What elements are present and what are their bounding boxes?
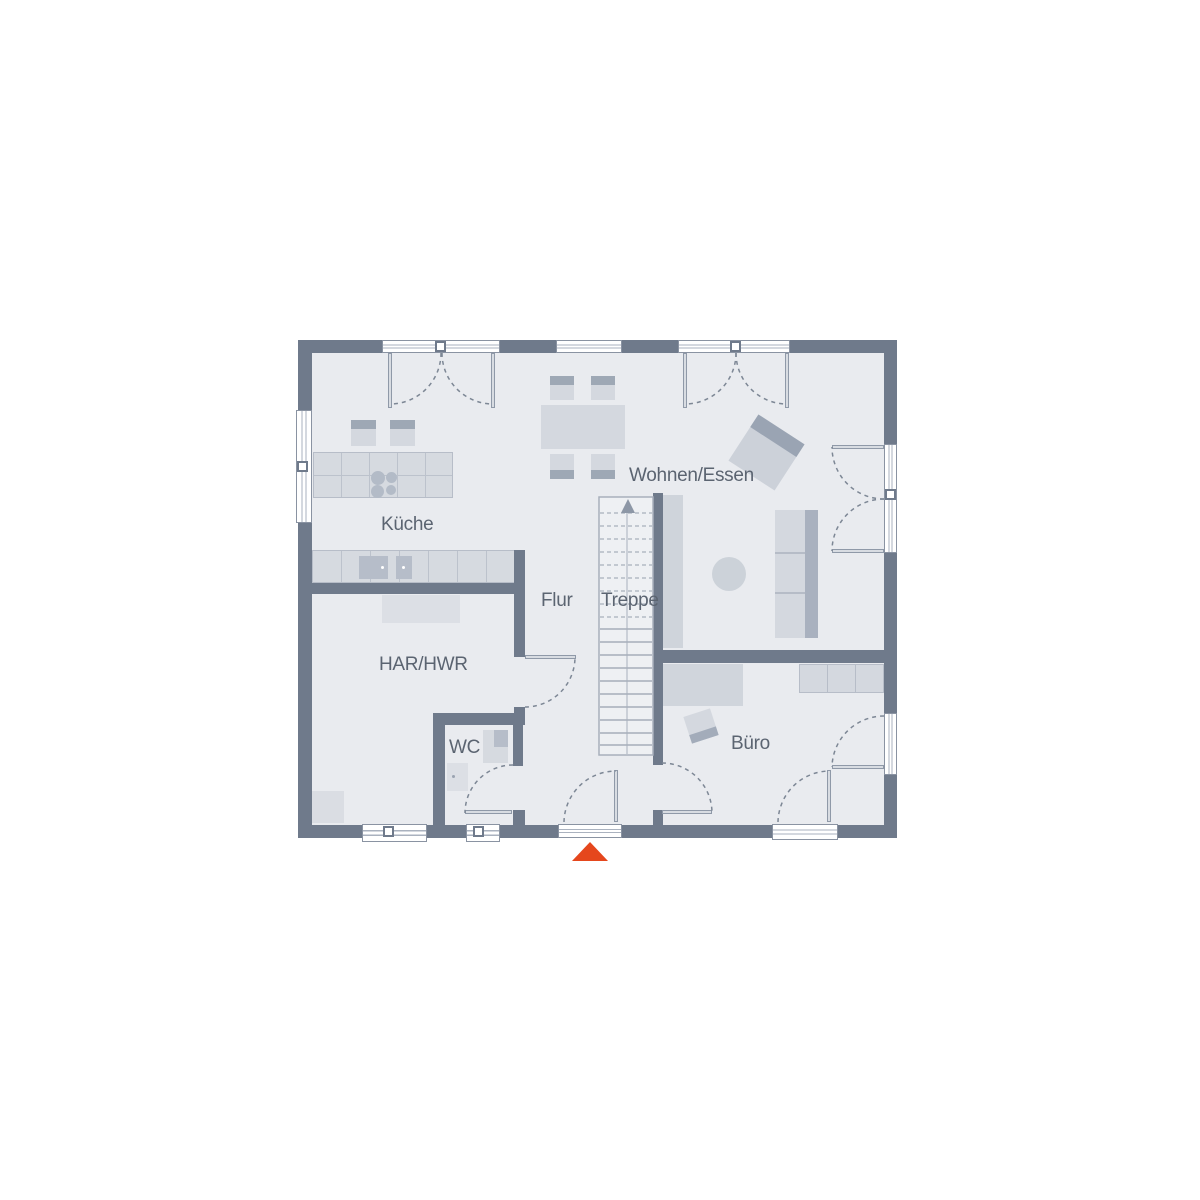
room-label-wohnen-essen: Wohnen/Essen: [629, 465, 754, 487]
washbasin: [447, 763, 468, 791]
dining-chair: [550, 454, 574, 479]
wall-kitchen-utility: [312, 583, 517, 594]
window-symbol: [730, 341, 741, 352]
wall-segment: [427, 825, 466, 838]
door-frame: [884, 713, 897, 775]
wall-segment: [298, 523, 312, 838]
coffee-table: [712, 557, 746, 591]
wall-segment: [298, 825, 362, 838]
wall-segment: [838, 825, 897, 838]
kitchen-appliance: [390, 420, 415, 446]
cooktop-burner: [371, 471, 385, 485]
wall-segment: [500, 825, 558, 838]
floor-plan: Küche Wohnen/Essen Flur Treppe HAR/HWR W…: [0, 0, 1200, 1200]
wall-segment: [884, 353, 897, 444]
office-shelf: [799, 664, 884, 693]
floor-mat: [312, 791, 344, 823]
window-symbol: [435, 341, 446, 352]
cooktop-burner: [386, 472, 397, 483]
kitchen-sink-counter: [312, 550, 517, 583]
room-label-har-hwr: HAR/HWR: [379, 654, 468, 676]
toilet: [483, 730, 508, 763]
door-frame: [772, 824, 838, 840]
wall-wc-top: [433, 713, 514, 725]
window: [556, 340, 622, 353]
window-symbol: [885, 489, 896, 500]
room-label-kueche: Küche: [381, 514, 433, 536]
window: [362, 824, 427, 842]
wall-stub: [513, 810, 525, 825]
room-label-treppe: Treppe: [601, 590, 659, 612]
entrance-marker-triangle: [572, 842, 608, 861]
wall-stub: [653, 810, 663, 825]
wall-segment: [790, 340, 897, 353]
wall-segment: [622, 825, 772, 838]
room-label-flur: Flur: [541, 590, 573, 612]
sideboard: [662, 495, 683, 648]
window-symbol: [383, 826, 394, 837]
wall-segment: [884, 553, 897, 713]
wall-wc-left: [433, 713, 445, 825]
room-label-wc: WC: [449, 737, 480, 759]
wall-segment: [298, 340, 312, 410]
wall-segment: [622, 340, 678, 353]
room-label-buero: Büro: [731, 733, 770, 755]
window-symbol: [297, 461, 308, 472]
dining-chair: [591, 376, 615, 400]
wall-wc-right: [513, 725, 523, 766]
dining-chair: [550, 376, 574, 400]
sink: [359, 556, 388, 579]
wall-stair: [653, 493, 663, 765]
cooktop-burner: [386, 485, 396, 495]
kitchen-appliance: [351, 420, 376, 446]
desk: [662, 664, 743, 706]
entrance-door-frame: [558, 824, 622, 838]
window-symbol: [473, 826, 484, 837]
wall-hall: [514, 550, 525, 657]
sofa: [775, 510, 818, 638]
cooktop-burner: [371, 485, 384, 498]
wall-segment: [500, 340, 556, 353]
wall-living-office: [663, 650, 884, 663]
wall-stub: [514, 707, 525, 725]
utility-shelf: [382, 595, 460, 623]
sink: [396, 556, 412, 579]
dining-table: [541, 405, 625, 449]
dining-chair: [591, 454, 615, 479]
